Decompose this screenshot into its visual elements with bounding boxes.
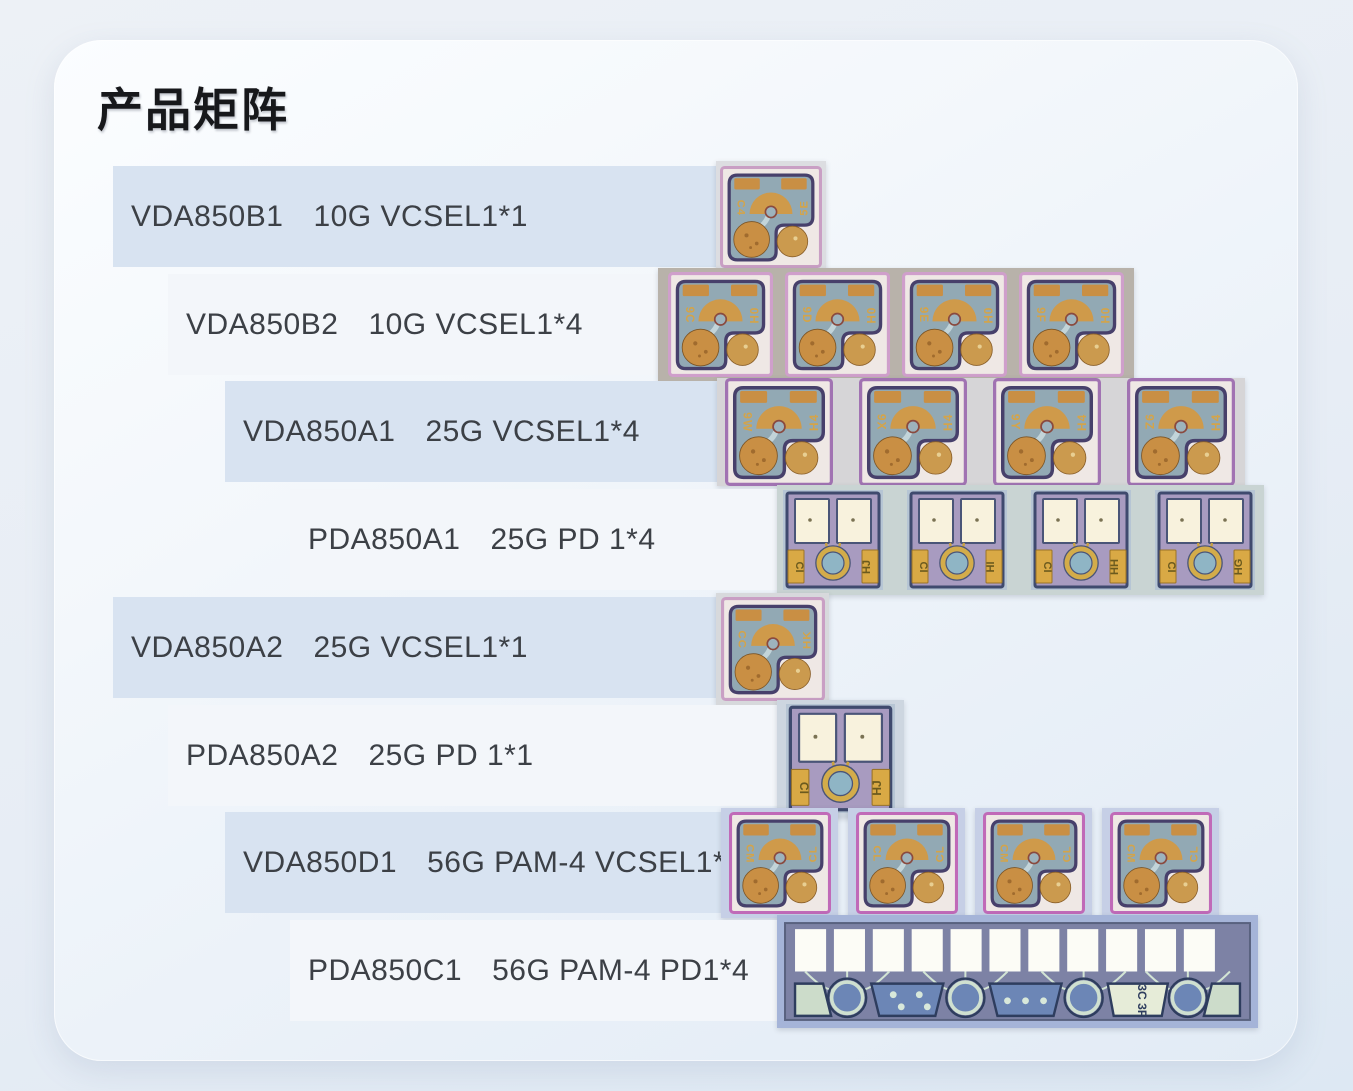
product-model: VDA850D1 xyxy=(243,846,397,879)
product-spec: 25G PD 1*4 xyxy=(490,523,655,556)
chip-photo-group: C4 5E xyxy=(716,161,826,272)
product-row-label: VDA850A125G VCSEL1*4 xyxy=(243,415,640,449)
die-label-right: HK xyxy=(801,630,813,649)
vcsel-chip-photo: CM CL xyxy=(983,812,1085,914)
die-label-right: H0 xyxy=(983,307,995,324)
die-label-right: 5E xyxy=(799,199,811,215)
product-spec: 10G VCSEL1*1 xyxy=(313,200,527,233)
product-model: VDA850B1 xyxy=(131,200,283,233)
die-label-right: H4 xyxy=(941,414,955,431)
page-title: 产品矩阵 xyxy=(97,74,289,140)
die-label-left: 9E xyxy=(917,307,929,323)
product-model: VDA850A1 xyxy=(243,415,395,448)
product-row-label: VDA850A225G VCSEL1*1 xyxy=(131,631,528,665)
die-label-right: HI xyxy=(985,562,997,573)
die-label-right: H0 xyxy=(1100,307,1112,324)
die-label-left: 9X xyxy=(874,414,888,431)
chip-photo-group: 9W H4 9X H4 9Y H4 xyxy=(717,378,1245,486)
product-row-label: PDA850A125G PD 1*4 xyxy=(308,523,656,557)
pd-chip-photo: CI HI xyxy=(907,490,1007,590)
product-row-vda850a2: VDA850A225G VCSEL1*1 xyxy=(113,597,718,698)
product-spec: 56G PAM-4 VCSEL1*4 xyxy=(427,846,742,879)
pd-array-chip-photo: 3C 3F xyxy=(777,915,1258,1028)
die-label-right: HJ xyxy=(861,560,873,574)
vcsel-chip-photo: 9Z H4 xyxy=(1127,378,1235,486)
vcsel-chip-photo: CM CL xyxy=(729,812,831,914)
product-spec: 25G PD 1*1 xyxy=(368,739,533,772)
die-label-left: C4 xyxy=(734,199,746,215)
die-label-left: CI xyxy=(797,782,811,794)
die-label-right: HG xyxy=(1233,559,1245,576)
product-row-pda850a2: PDA850A225G PD 1*1 xyxy=(168,705,778,806)
product-row-label: VDA850B110G VCSEL1*1 xyxy=(131,200,528,234)
pd-chip-photo: CI HJ xyxy=(786,704,895,813)
vcsel-chip-photo: 9D H0 xyxy=(785,272,890,377)
product-model: VDA850B2 xyxy=(186,308,338,341)
vcsel-chip-photo: CL CL xyxy=(856,812,958,914)
die-label-right: H4 xyxy=(1209,414,1223,431)
die-label-left: 9Z xyxy=(1142,414,1156,430)
die-label-right: CL xyxy=(934,845,946,862)
pd-chip-photo: CI HJ xyxy=(783,490,883,590)
vcsel-chip-photo: CC HK xyxy=(721,597,825,701)
die-label-left: 9F xyxy=(1034,307,1046,323)
die-label-right: CL xyxy=(1061,845,1073,862)
product-row-vda850a1: VDA850A125G VCSEL1*4 xyxy=(225,381,718,482)
die-label-left: CM xyxy=(1124,844,1136,863)
product-row-label: PDA850C156G PAM-4 PD1*4 xyxy=(308,954,749,988)
die-label-right: H0 xyxy=(749,307,761,324)
die-label-right: HH xyxy=(1109,559,1121,575)
vcsel-chip-photo: 9X H4 xyxy=(859,378,967,486)
die-label-left: CI xyxy=(1041,562,1053,573)
die-label-right: H0 xyxy=(866,307,878,324)
die-label-right: H4 xyxy=(807,414,821,431)
die-label-left: 9D xyxy=(800,307,812,324)
product-row-vda850d1: VDA850D156G PAM-4 VCSEL1*4 xyxy=(225,812,722,913)
product-row-label: VDA850B210G VCSEL1*4 xyxy=(186,308,583,342)
die-label-left: 9Y xyxy=(1008,414,1022,431)
die-label-left: CC xyxy=(735,630,747,649)
chip-photo-group: CM CL CL CL CM CL xyxy=(721,808,1222,918)
die-label-left: 9W xyxy=(740,412,754,432)
product-row-vda850b1: VDA850B110G VCSEL1*1 xyxy=(113,166,718,267)
vcsel-chip-photo: 9F H0 xyxy=(1019,272,1124,377)
product-row-label: PDA850A225G PD 1*1 xyxy=(186,739,534,773)
die-label-left: CI xyxy=(917,562,929,573)
product-spec: 10G VCSEL1*4 xyxy=(368,308,582,341)
chip-photo-group: 9C H0 9D H0 9E H0 xyxy=(658,268,1134,381)
product-spec: 25G VCSEL1*4 xyxy=(425,415,639,448)
chip-photo-group: CI HJ xyxy=(777,700,904,817)
pd-chip-photo: CI HH xyxy=(1031,490,1131,590)
chip-photo-group: CI HJ CI HI CI HH xyxy=(777,485,1264,595)
product-row-label: VDA850D156G PAM-4 VCSEL1*4 xyxy=(243,846,742,880)
die-label-right: CL xyxy=(1188,845,1200,862)
die-label-left: CM xyxy=(997,844,1009,863)
pd-chip-photo: CI HG xyxy=(1155,490,1255,590)
product-model: VDA850A2 xyxy=(131,631,283,664)
product-model: PDA850A1 xyxy=(308,523,460,556)
die-label-right: H4 xyxy=(1075,414,1089,431)
vcsel-chip-photo: 9W H4 xyxy=(725,378,833,486)
product-row-pda850a1: PDA850A125G PD 1*4 xyxy=(290,489,778,590)
vcsel-chip-photo: C4 5E xyxy=(720,166,822,268)
product-spec: 56G PAM-4 PD1*4 xyxy=(492,954,749,987)
die-label-left: CL xyxy=(870,845,882,862)
vcsel-chip-photo: 9Y H4 xyxy=(993,378,1101,486)
product-row-vda850b2: VDA850B210G VCSEL1*4 xyxy=(168,274,658,375)
slide-canvas: 产品矩阵 VDA850B110G VCSEL1*1 C4 5E VDA850B2… xyxy=(0,0,1353,1091)
die-label-right: HJ xyxy=(870,780,884,795)
product-row-pda850c1: PDA850C156G PAM-4 PD1*4 xyxy=(290,920,778,1021)
die-label-left: CM xyxy=(743,844,755,863)
die-label-right: CL xyxy=(807,845,819,862)
die-label: 3C 3F xyxy=(1135,984,1149,1017)
product-model: PDA850A2 xyxy=(186,739,338,772)
product-spec: 25G VCSEL1*1 xyxy=(313,631,527,664)
chip-photo-group: CC HK xyxy=(716,593,829,705)
die-label-left: CI xyxy=(1165,562,1177,573)
vcsel-chip-photo: CM CL xyxy=(1110,812,1212,914)
die-label-left: CI xyxy=(793,562,805,573)
die-label-left: 9C xyxy=(683,307,695,324)
vcsel-chip-photo: 9C H0 xyxy=(668,272,773,377)
product-model: PDA850C1 xyxy=(308,954,462,987)
vcsel-chip-photo: 9E H0 xyxy=(902,272,1007,377)
chip-photo-group: 3C 3F xyxy=(777,915,1258,1028)
